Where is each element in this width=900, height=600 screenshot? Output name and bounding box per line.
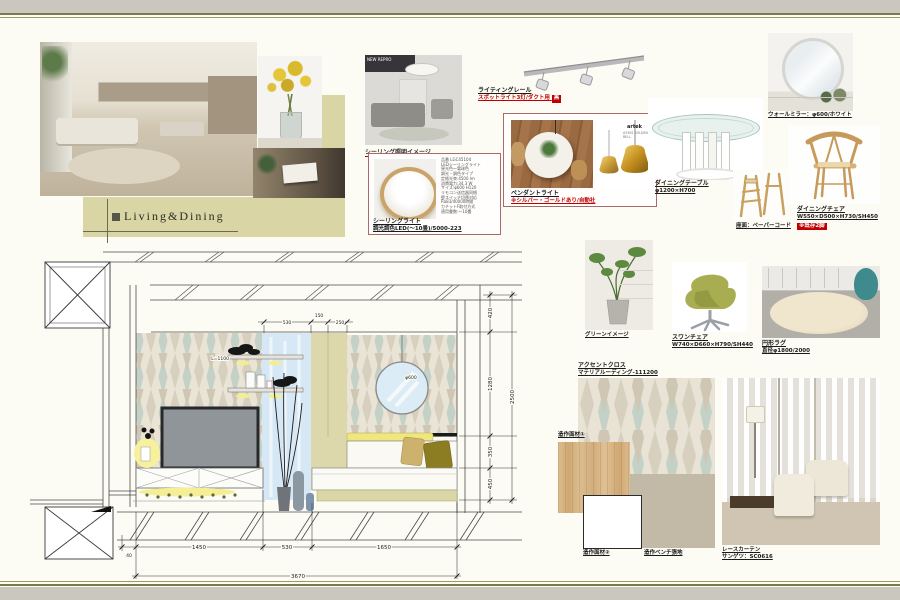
book xyxy=(282,163,317,184)
curtain-label: レースカーテン サンゲツ：SC0616 xyxy=(722,547,773,562)
stool-label: 座面：ペーパーコード xyxy=(736,223,791,230)
step-stool-drawing xyxy=(733,170,787,220)
boucle-sample xyxy=(630,474,715,548)
ceiling-light-label: シーリングライト 調光調色LED(〜10畳)/5000-223 xyxy=(373,218,462,234)
swan-label: スワンチェア W740×D660×H790/SH440 xyxy=(672,334,753,350)
step-stool-photo xyxy=(733,170,787,220)
title-vertical-line xyxy=(107,199,108,243)
tv-cabinet xyxy=(133,468,265,501)
base-ring xyxy=(676,168,740,180)
mirror-label: ウォールミラー：φ600/ホワイト xyxy=(768,112,852,119)
dim-bottom-1650: 1650 xyxy=(377,545,391,551)
chair-label: ダイニングチェア W550×D500×H730/SH450 ※既存2脚 xyxy=(797,206,878,230)
ceiling-light-specs: 品番 LGC45104 LEDシーリングライト 昼光色〜電球色 調光・調色タイプ… xyxy=(441,158,497,216)
material1-label: 造作面材① xyxy=(558,432,585,439)
wishbone-chair-drawing xyxy=(788,126,880,204)
rail-label: ライティングレール スポットライト3灯/ダクト用 黒 xyxy=(478,87,561,103)
room-sofa xyxy=(371,103,425,127)
armchair-front xyxy=(774,474,814,516)
coffee-table xyxy=(730,496,774,508)
door-mullions xyxy=(768,268,848,288)
flowers-photo xyxy=(258,56,322,148)
wishbone-chair-photo xyxy=(788,126,880,204)
pendant-brand: artek xyxy=(627,124,642,130)
ceiling-light-box: 品番 LGC45104 LEDシーリングライト 昼光色〜電球色 調光・調色タイプ… xyxy=(368,153,501,235)
chair-blob-1 xyxy=(511,142,525,166)
swan-chair-drawing xyxy=(672,262,747,332)
bench-fabric-label: 造作ベンチ張地 xyxy=(644,550,683,557)
chair-badge: ※既存2脚 xyxy=(797,223,827,230)
dim-bottom-3670: 3670 xyxy=(291,574,305,580)
table-base-slats xyxy=(682,132,730,172)
top-band xyxy=(0,0,900,13)
dim-right-420: 420 xyxy=(488,307,494,318)
pendant-room-photo xyxy=(511,120,593,188)
mirror-photo xyxy=(768,33,853,111)
title-square xyxy=(112,213,120,221)
swan-chair-photo xyxy=(672,262,747,332)
ceiling-hatch xyxy=(135,252,499,300)
dim-top-530: 530 xyxy=(283,320,292,326)
dim-right-1280: 1280 xyxy=(488,377,494,391)
dim-bottom-1450: 1450 xyxy=(192,545,206,551)
lamp-shade xyxy=(746,406,765,423)
table-plant xyxy=(539,140,559,158)
ceiling-light-photo xyxy=(374,159,436,219)
mirror-plants xyxy=(816,85,850,105)
dim-right-2500: 2500 xyxy=(510,390,516,404)
pendant-label: ペンダントライト ※シルバー・ゴールドあり/自動社 xyxy=(511,190,595,206)
curtain-room-photo xyxy=(722,378,880,545)
floor-hatch xyxy=(117,512,522,540)
rug-label: 円形ラグ 直径φ1800/2000 xyxy=(762,340,810,356)
light-body xyxy=(380,167,436,219)
photo-sofa xyxy=(56,118,138,144)
column-section-bottom xyxy=(45,507,113,559)
dining-table-photo xyxy=(648,98,763,180)
green-plant-photo xyxy=(585,240,653,330)
column-section-top xyxy=(45,262,110,328)
bottom-band xyxy=(0,587,900,600)
room-rug xyxy=(379,127,449,141)
room-chair xyxy=(431,99,453,119)
dim-top-150: 150 xyxy=(315,313,324,319)
dim-right-450: 450 xyxy=(488,478,494,489)
material2-label: 造作面材② xyxy=(583,550,610,557)
khaki-strip xyxy=(311,333,347,490)
dim-bottom-530: 530 xyxy=(282,545,293,551)
green-label: グリーンイメージ xyxy=(585,332,629,339)
brand-text: NEW REPRO xyxy=(367,57,391,62)
white-sample xyxy=(583,495,642,549)
chair-blob-2 xyxy=(571,160,587,180)
bottom-rule xyxy=(0,584,900,586)
slat xyxy=(721,132,730,172)
flower-vase xyxy=(280,112,302,140)
tv xyxy=(162,408,258,468)
table-label: ダイニングテーブル φ1200×H700 xyxy=(655,180,709,196)
title-rule xyxy=(83,231,238,232)
top-rule xyxy=(0,13,900,15)
floor-lamp xyxy=(754,420,756,478)
photo-cabinets xyxy=(98,82,216,102)
books-photo xyxy=(253,148,345,198)
pendant-cord xyxy=(555,120,556,134)
photo-plant xyxy=(42,46,68,86)
photo-kitchen xyxy=(208,76,257,134)
rail-color-badge: 黒 xyxy=(552,95,562,102)
dim-top-250: 250 xyxy=(336,320,345,326)
top-rule-thin xyxy=(0,17,900,18)
photo-rug xyxy=(68,148,180,184)
round-rug-photo xyxy=(762,266,880,338)
egg-chair xyxy=(854,268,878,300)
dim-right-350: 350 xyxy=(488,446,494,457)
slat xyxy=(682,132,691,172)
photo-dining-set xyxy=(160,122,204,136)
living-room-photo xyxy=(40,42,257,196)
shelf-lines xyxy=(619,270,653,310)
accent-cloth-label: アクセントクロス マテリアルーディング-111200 xyxy=(578,362,658,378)
pendant-product-photo: artek A330S GOLDEN BELL xyxy=(597,120,651,188)
ceiling-lamp xyxy=(405,63,439,76)
pendant-model: A330S GOLDEN BELL xyxy=(623,131,651,139)
console-line xyxy=(768,97,853,98)
page-title: Living&Dining xyxy=(124,209,225,224)
slat xyxy=(708,132,717,172)
dim-bottom-40: 40 xyxy=(126,553,132,559)
table-edge xyxy=(258,138,322,148)
mirror-dia-label: φ600 xyxy=(405,375,417,381)
shelf-length-label: L=1100 xyxy=(211,356,229,362)
elevation-drawing: φ600 xyxy=(25,245,525,583)
presentation-board: Living&Dining NEW REPRO シーリング照明イメージ 品番 L… xyxy=(0,0,900,600)
slat xyxy=(695,132,704,172)
pendant-box: artek A330S GOLDEN BELL ペンダントライト ※シルバー・ゴ… xyxy=(503,113,657,207)
book-plant xyxy=(257,152,277,176)
round-rug xyxy=(770,292,868,334)
ceiling-room-photo: NEW REPRO xyxy=(365,55,462,145)
